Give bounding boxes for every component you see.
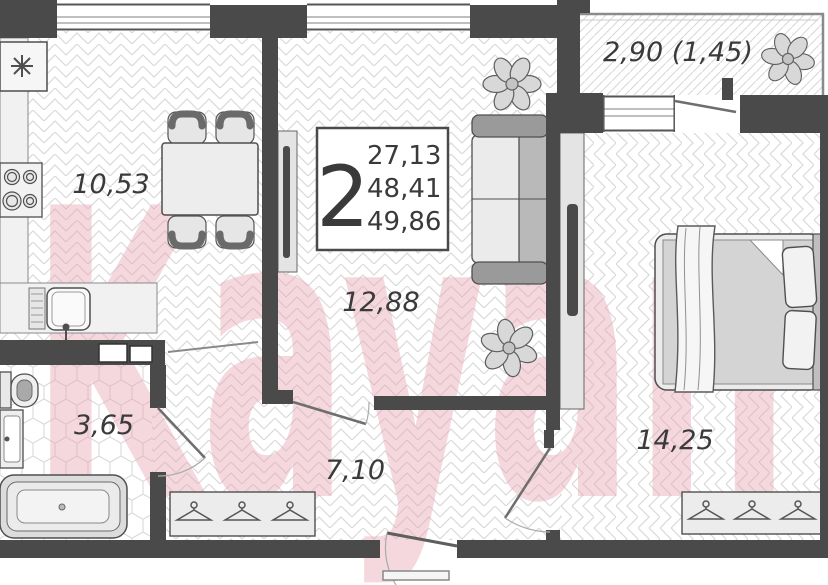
hallway — [170, 492, 315, 536]
wall — [470, 5, 560, 38]
drain — [59, 504, 65, 510]
vent-shaft — [99, 344, 127, 362]
washbasin — [0, 410, 23, 468]
wall-bathroom-right — [150, 472, 166, 540]
wall-door-jamb — [544, 430, 554, 448]
area-flat: 48,41 — [367, 174, 441, 204]
area-living: 27,13 — [367, 141, 441, 171]
wall-right — [820, 133, 828, 558]
sofa — [472, 115, 552, 284]
bedroom-wardrobe — [682, 492, 822, 534]
entrance-threshold — [383, 571, 449, 580]
chair — [216, 112, 254, 144]
floor-plan-page: Kayan — [0, 0, 828, 585]
hall-wardrobe — [170, 492, 315, 536]
hallway-area-label: 7,10 — [325, 455, 385, 486]
room-count: 2 — [316, 148, 369, 246]
vent-shaft — [130, 346, 152, 362]
chair — [168, 216, 206, 248]
wall-living-bedroom — [546, 93, 560, 430]
living-window — [307, 3, 470, 31]
wall-bottom-right — [457, 540, 828, 558]
area-total: 49,86 — [367, 207, 441, 237]
wall — [557, 93, 603, 133]
wall-bathroom-right — [150, 365, 166, 408]
kitchen-window — [57, 3, 210, 31]
snowflake-icon — [11, 55, 33, 77]
blanket — [675, 226, 715, 392]
living-room-area-label: 12,88 — [342, 287, 419, 318]
apartment-info-box: 2 27,13 48,41 49,86 — [316, 128, 448, 250]
bathroom-area-label: 3,65 — [74, 410, 134, 441]
balcony-window — [603, 95, 675, 132]
vent-shafts — [99, 344, 152, 362]
chair — [168, 112, 206, 144]
wall-living-hall — [374, 396, 550, 410]
tv-screen — [283, 146, 290, 258]
wall — [0, 0, 57, 38]
bedroom-tv-screen — [567, 204, 578, 316]
wall — [210, 5, 307, 38]
chair — [216, 216, 254, 248]
wall-bottom-left — [0, 540, 380, 558]
stove — [0, 163, 42, 217]
wall — [262, 390, 293, 404]
wall — [580, 0, 590, 13]
dining-table — [162, 143, 258, 215]
balcony-area-label: 2,90 (1,45) — [603, 37, 753, 68]
bed — [655, 226, 823, 392]
bathtub — [0, 475, 127, 538]
floor-plan: Kayan — [0, 0, 828, 585]
wall-balcony-partition — [557, 0, 580, 97]
pillow — [783, 310, 817, 370]
wall-kitchen-living — [262, 38, 278, 404]
wall — [740, 95, 828, 133]
toilet — [0, 372, 38, 408]
pillow — [782, 246, 817, 308]
bedroom-area-label: 14,25 — [636, 425, 713, 456]
kitchen-area-label: 10,53 — [72, 169, 149, 200]
